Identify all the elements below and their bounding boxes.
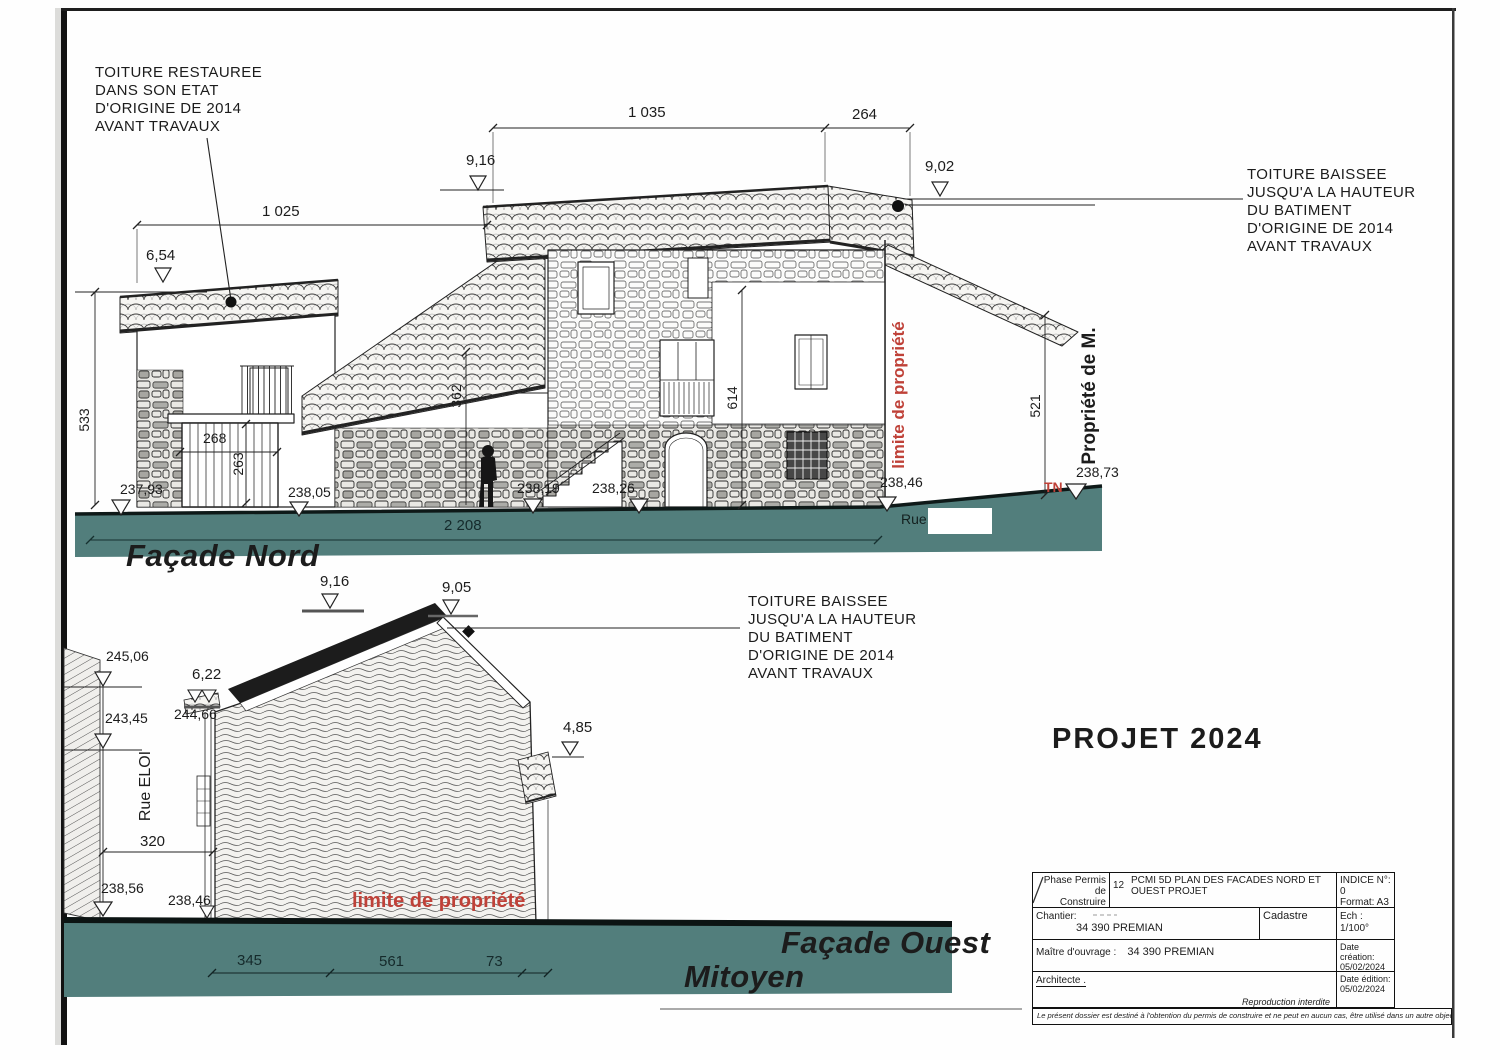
facade-nord-title: Façade Nord [126,538,319,574]
note-line: JUSQU'A LA HAUTEUR [748,611,916,629]
note-lowered-roof-ouest: TOITURE BAISSEE JUSQU'A LA HAUTEUR DU BA… [748,593,916,683]
cadastre-cell: Cadastre [1259,908,1336,939]
dim-1035: 1 035 [628,104,666,121]
chantier-cell: Chantier: 34 390 PREMIAN [1033,908,1259,939]
note-lowered-roof-nord: TOITURE BAISSEE JUSQU'A LA HAUTEUR DU BA… [1247,166,1415,256]
phase-cell: Phase Permis de Construire [1033,873,1109,907]
dim-533: 533 [76,408,92,431]
level-9-16-ouest: 9,16 [320,573,349,590]
echelle-cell: Ech : 1/100° [1336,908,1394,939]
echelle-value: Ech : 1/100° [1340,911,1369,934]
level-4-85: 4,85 [563,719,592,736]
arched-door [665,433,707,507]
french-window [660,340,714,416]
level-6-22: 6,22 [192,666,221,683]
shutter [197,776,210,826]
note-line: AVANT TRAVAUX [748,665,916,683]
date-creation-value: 05/02/2024 [1340,962,1391,972]
scanned-drawing-sheet: TOITURE RESTAUREE DANS SON ETAT D'ORIGIN… [0,0,1500,1060]
facade-ouest-buildings [64,603,740,972]
doc-title-line1: PCMI 5D PLAN DES FACADES NORD ET [1131,875,1321,886]
note-line: D'ORIGINE DE 2014 [95,100,262,118]
disclaimer-strip: Le présent dossier est destiné à l'obten… [1032,1008,1452,1025]
window-small [688,258,708,298]
note-line: TOITURE BAISSEE [1247,166,1415,184]
title-block-row-4: Architecte . Reproduction interdite Date… [1033,971,1394,1009]
facade-nord-buildings [120,186,1078,508]
architecte-cell: Architecte . Reproduction interdite [1033,972,1336,1009]
balcony-door [250,368,288,414]
level-245-06: 245,06 [106,648,149,664]
chantier-label: Chantier: [1036,911,1077,922]
note-line: AVANT TRAVAUX [1247,238,1415,256]
date-edition-cell: Date édition: 05/02/2024 [1336,972,1394,1009]
ground-level-238-19: 238,19 [517,480,560,496]
indice-label: INDICE N°: 0 [1340,875,1391,897]
facade-ouest-title: Façade Ouest [781,925,990,961]
dim-561: 561 [379,953,404,970]
roof-marker-diamond [462,625,475,638]
doc-title-cell: 12 PCMI 5D PLAN DES FACADES NORD ET OUES… [1109,873,1336,907]
roof-lowered-right [828,186,914,256]
cadastre-label: Cadastre [1263,910,1308,922]
level-9-05: 9,05 [442,579,471,596]
level-244-66: 244,66 [174,706,217,722]
title-block: Phase Permis de Construire 12 PCMI 5D PL… [1032,872,1395,1008]
ground-level-237-93: 237,93 [120,481,163,497]
street-name-redaction-box [928,508,992,534]
leader-dot-right-roof [892,200,904,212]
moa-label: Maître d'ouvrage : [1036,947,1116,958]
note-line: TOITURE RESTAUREE [95,64,262,82]
note-line: D'ORIGINE DE 2014 [1247,220,1415,238]
note-line: DANS SON ETAT [95,82,262,100]
level-9-16-nord: 9,16 [466,152,495,169]
note-line: DU BATIMENT [748,629,916,647]
note-line: DU BATIMENT [1247,202,1415,220]
date-creation-label: Date création: [1340,942,1391,962]
level-243-45: 243,45 [105,710,148,726]
ground-level-238-05: 238,05 [288,484,331,500]
date-creation-cell: Date création: 05/02/2024 [1336,940,1394,971]
limite-propriete-ouest: limite de propriété [352,890,525,913]
note-line: TOITURE BAISSEE [748,593,916,611]
tn-label: TN [1044,479,1063,495]
reproduction-label: Reproduction interdite [1242,997,1330,1007]
dim-263: 263 [230,452,246,475]
window-upper-left [578,262,614,314]
grilled-window [787,432,827,479]
level-6-54: 6,54 [146,247,175,264]
dim-521: 521 [1027,394,1043,417]
propriete-de-m: Propriété de M. [1079,327,1101,464]
doc-title-line2: OUEST PROJET [1131,886,1321,897]
format-label: Format: A3 [1340,897,1391,908]
chantier-value: 34 390 PREMIAN [1036,922,1256,934]
phase-line1: Phase Permis de [1036,875,1106,897]
ground-level-238-26: 238,26 [592,480,635,496]
doc-number: 12 [1113,875,1131,905]
project-title: PROJET 2024 [1052,723,1263,756]
indice-cell: INDICE N°: 0 Format: A3 [1336,873,1394,907]
dim-614: 614 [724,386,740,409]
ground-level-238-46-ouest: 238,46 [168,892,211,908]
street-wall-section [64,648,100,921]
leader-dot-left-roof [226,297,237,308]
moa-value: 34 390 PREMIAN [1119,942,1214,958]
dim-264: 264 [852,106,877,123]
moa-cell: Maître d'ouvrage : 34 390 PREMIAN [1033,940,1336,971]
dim-345: 345 [237,952,262,969]
dim-73: 73 [486,953,503,970]
dim-2208: 2 208 [444,517,482,534]
balcony-slab [168,414,294,423]
ground-level-238-46: 238,46 [880,474,923,490]
dim-362: 362 [448,384,464,407]
ground-level-238-73: 238,73 [1076,464,1119,480]
title-block-row-2: Chantier: 34 390 PREMIAN Cadastre Ech : … [1033,907,1394,939]
limite-propriete-nord: limite de propriété [889,321,909,468]
ground-level-238-56: 238,56 [101,880,144,896]
title-block-row-1: Phase Permis de Construire 12 PCMI 5D PL… [1033,873,1394,907]
leader-restored-roof [207,138,231,300]
level-9-02: 9,02 [925,158,954,175]
dim-268: 268 [203,430,226,446]
rue-label: Rue [901,511,927,527]
date-edition-label: Date édition: [1340,974,1391,984]
architecte-label: Architecte . [1036,975,1086,987]
mitoyen-label: Mitoyen [684,959,805,995]
note-line: JUSQU'A LA HAUTEUR [1247,184,1415,202]
title-block-row-3: Maître d'ouvrage : 34 390 PREMIAN Date c… [1033,939,1394,971]
dim-1025: 1 025 [262,203,300,220]
note-line: AVANT TRAVAUX [95,118,262,136]
dim-320: 320 [140,833,165,850]
phase-line2: Construire [1036,897,1106,908]
rue-eloi-label: Rue ELOI [137,751,155,821]
date-edition-value: 05/02/2024 [1340,984,1391,994]
window-right-building [795,335,827,389]
note-restored-roof: TOITURE RESTAUREE DANS SON ETAT D'ORIGIN… [95,64,262,136]
note-line: D'ORIGINE DE 2014 [748,647,916,665]
